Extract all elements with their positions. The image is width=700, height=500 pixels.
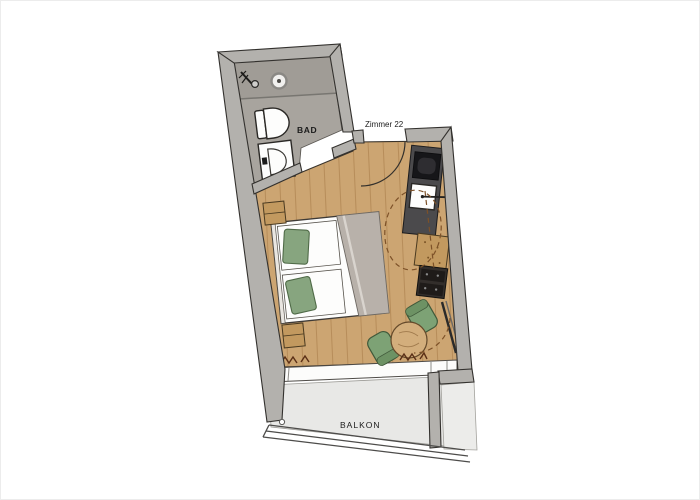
drawer-unit bbox=[416, 265, 447, 298]
bathroom-label: BAD bbox=[297, 125, 317, 135]
shower-drain bbox=[272, 74, 287, 89]
neighbor-terrace bbox=[441, 382, 477, 450]
wall-parapet bbox=[438, 369, 474, 384]
floor-plan-image: BAD Zimmer 22 BALKON bbox=[0, 0, 700, 500]
double-bed bbox=[271, 212, 389, 324]
railing-post-circle bbox=[279, 419, 284, 424]
balcony-pillar bbox=[428, 372, 441, 448]
basin-faucet-icon bbox=[262, 157, 268, 165]
pillow bbox=[283, 229, 310, 264]
nightstand bbox=[263, 201, 286, 225]
wall-entry-left bbox=[352, 130, 364, 143]
floor-plan-svg: BAD Zimmer 22 BALKON bbox=[1, 1, 700, 500]
nightstand bbox=[282, 323, 305, 348]
room-label: Zimmer 22 bbox=[365, 120, 404, 129]
balcony-label: BALKON bbox=[340, 420, 381, 430]
appliance-detail bbox=[417, 157, 437, 175]
desk bbox=[414, 233, 450, 269]
